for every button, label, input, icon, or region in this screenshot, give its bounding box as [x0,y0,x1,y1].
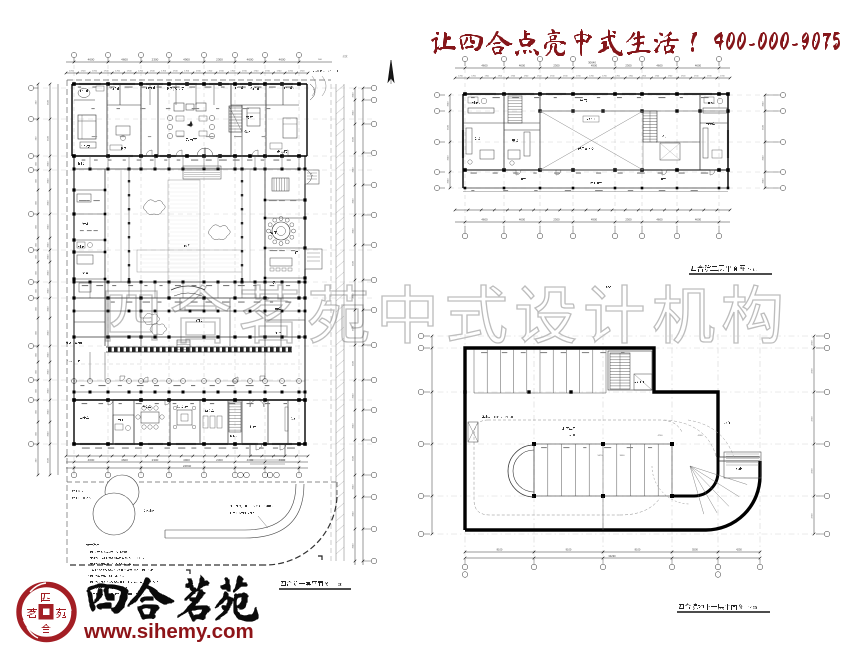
svg-text:1700: 1700 [92,71,98,73]
svg-text:3640: 3640 [353,136,355,142]
svg-text:3640: 3640 [448,124,450,130]
svg-text:1700: 1700 [173,71,179,73]
svg-text:3640: 3640 [48,457,50,463]
svg-text:4600: 4600 [121,458,128,462]
svg-text:3640: 3640 [48,178,50,184]
svg-text:3640: 3640 [353,110,355,116]
svg-text:5500: 5500 [692,548,698,552]
svg-text:1700: 1700 [184,71,190,73]
svg-text:4100: 4100 [698,435,704,437]
svg-text:1700: 1700 [276,71,282,73]
svg-text:2300: 2300 [553,64,560,68]
svg-text:4700: 4700 [812,416,814,422]
svg-text:3640: 3640 [763,124,765,130]
svg-text:4600: 4600 [656,218,663,222]
svg-text:3640: 3640 [48,99,50,105]
svg-text:8100: 8100 [635,548,641,552]
svg-text:4700: 4700 [812,368,814,374]
svg-text:4600: 4600 [279,58,286,62]
svg-text:24840: 24840 [183,464,192,468]
svg-text:3640: 3640 [48,306,50,312]
svg-text:3640: 3640 [48,352,50,358]
svg-text:3640: 3640 [353,511,355,517]
svg-text:4250: 4250 [736,548,742,552]
svg-text:34290: 34290 [608,554,616,558]
svg-text:1700: 1700 [115,71,121,73]
svg-text:4600: 4600 [121,58,128,62]
svg-text:3640: 3640 [48,388,50,394]
svg-text:2300: 2300 [625,64,632,68]
svg-text:5470: 5470 [598,455,604,457]
svg-text:3640: 3640 [353,260,355,266]
svg-text:3400: 3400 [620,455,626,457]
svg-text:3640: 3640 [48,431,50,437]
svg-text:1700: 1700 [300,71,306,73]
svg-text:1700: 1700 [242,71,248,73]
svg-text:3640: 3640 [48,330,50,336]
svg-text:3640: 3640 [48,161,50,167]
svg-text:2300: 2300 [216,58,223,62]
svg-text:2300: 2300 [625,218,632,222]
svg-text:3640: 3640 [48,409,50,415]
svg-text:3640: 3640 [353,293,355,299]
svg-text:3640: 3640 [353,423,355,429]
svg-text:4600: 4600 [695,218,702,222]
svg-text:4900: 4900 [591,218,598,222]
svg-text:4600: 4600 [247,58,254,62]
svg-text:3640: 3640 [48,369,50,375]
svg-text:30640: 30640 [588,61,596,65]
svg-text:4900: 4900 [183,458,190,462]
svg-text:3640: 3640 [353,325,355,331]
svg-text:1700: 1700 [161,71,167,73]
svg-text:3640: 3640 [353,92,355,98]
svg-text:3640: 3640 [353,228,355,234]
svg-text:1700: 1700 [138,71,144,73]
svg-text:9100: 9100 [566,548,572,552]
svg-text:2300: 2300 [553,218,560,222]
svg-text:1700: 1700 [127,71,133,73]
svg-text:4600: 4600 [481,64,488,68]
svg-text:3640: 3640 [48,242,50,248]
svg-text:3640: 3640 [353,167,355,173]
svg-text:3640: 3640 [763,101,765,107]
svg-text:8100: 8100 [497,548,503,552]
svg-text:1700: 1700 [265,71,271,73]
svg-text:4700: 4700 [812,340,814,346]
svg-text:1700: 1700 [104,71,110,73]
svg-text:3640: 3640 [48,288,50,294]
svg-text:1700: 1700 [288,71,294,73]
svg-text:3640: 3640 [448,101,450,107]
svg-text:4600: 4600 [656,64,663,68]
svg-text:4900: 4900 [183,58,190,62]
svg-text:3640: 3640 [48,254,50,260]
svg-text:2300: 2300 [152,458,159,462]
svg-text:4600: 4600 [519,64,526,68]
svg-text:1700: 1700 [230,71,236,73]
svg-text:3640: 3640 [448,178,450,184]
svg-text:1700: 1700 [207,71,213,73]
svg-text:3640: 3640 [48,224,50,230]
svg-text:1700: 1700 [69,71,75,73]
svg-text:4700: 4700 [658,435,664,437]
svg-text:2300: 2300 [152,58,159,62]
svg-text:3640: 3640 [353,543,355,549]
svg-text:3640: 3640 [48,200,50,206]
svg-text:3640: 3640 [353,198,355,204]
svg-text:3640: 3640 [353,393,355,399]
svg-text:www.sihemy.com: www.sihemy.com [83,620,254,643]
svg-text:4600: 4600 [88,458,95,462]
svg-text:1700: 1700 [196,71,202,73]
svg-text:1700: 1700 [81,71,87,73]
svg-text:3640: 3640 [353,455,355,461]
svg-text:1700: 1700 [253,71,259,73]
svg-text:3640: 3640 [448,155,450,161]
svg-text:3640: 3640 [763,178,765,184]
svg-text:3640: 3640 [48,135,50,141]
svg-text:3640: 3640 [763,155,765,161]
svg-text:3640: 3640 [48,270,50,276]
svg-text:4700: 4700 [812,468,814,474]
svg-text:2300: 2300 [216,458,223,462]
svg-text:3640: 3640 [353,484,355,490]
svg-text:3640: 3640 [353,360,355,366]
svg-text:总宽: 总宽 [342,54,348,58]
svg-text:1700: 1700 [219,71,225,73]
svg-text:4700: 4700 [812,513,814,519]
svg-text:4600: 4600 [695,64,702,68]
svg-text:4600: 4600 [88,58,95,62]
svg-text:1700: 1700 [150,71,156,73]
svg-text:4600: 4600 [519,218,526,222]
svg-text:4600: 4600 [481,218,488,222]
